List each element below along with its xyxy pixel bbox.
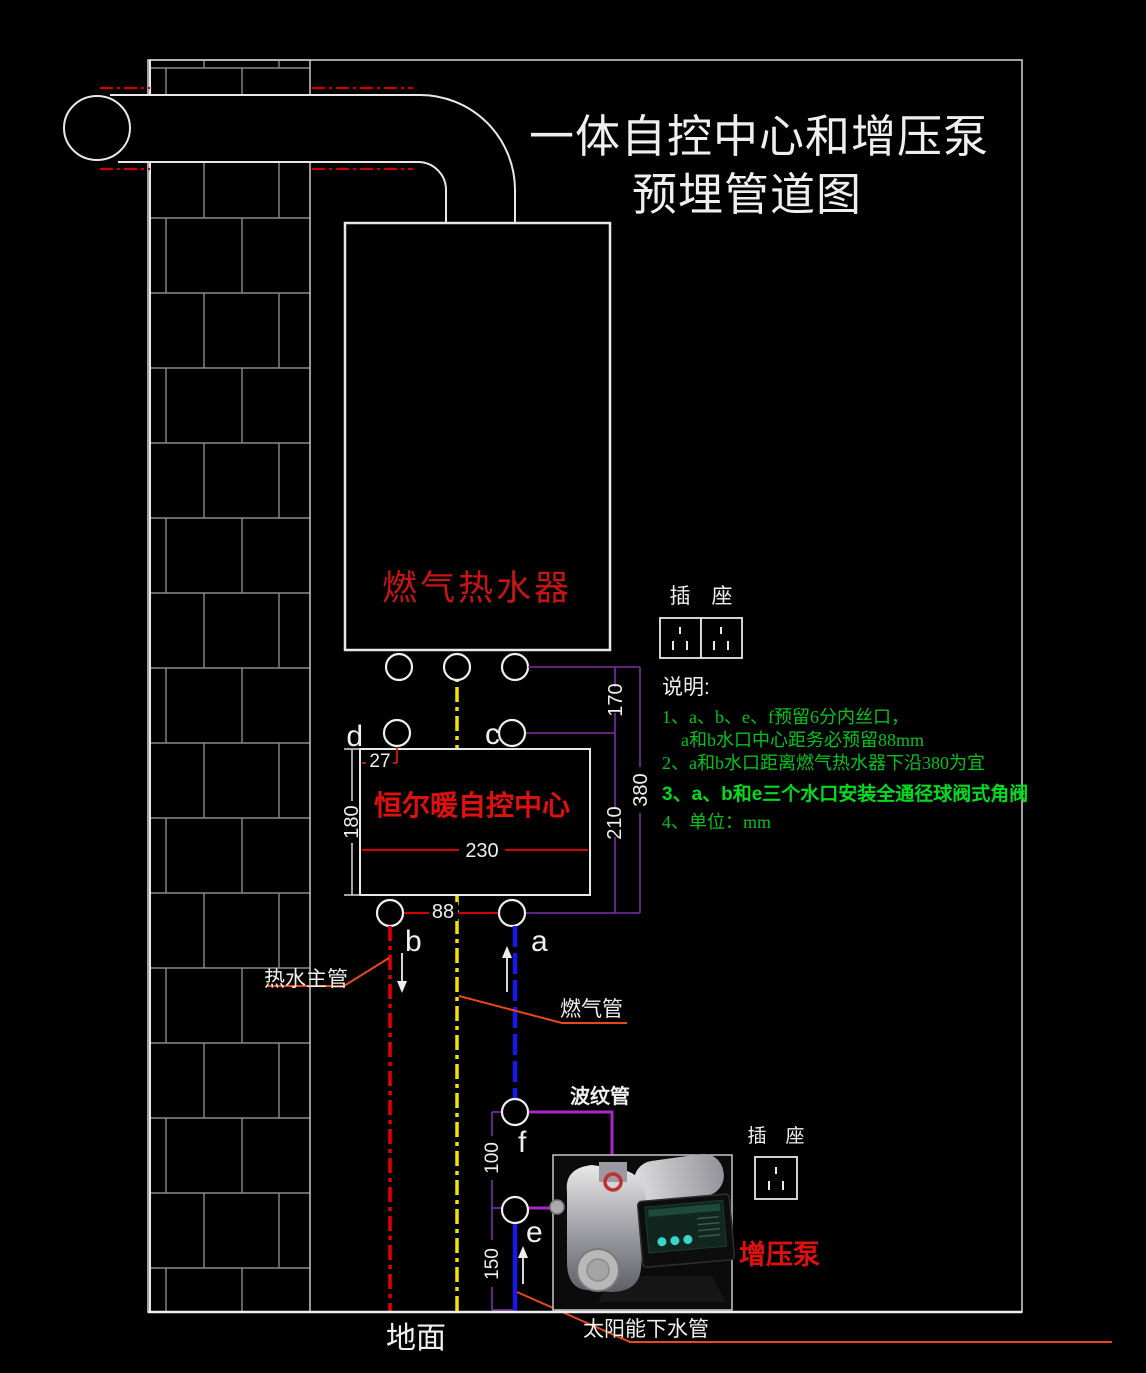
pump-control-panel xyxy=(637,1194,734,1268)
lower-ports xyxy=(502,1099,528,1223)
heater-port-right xyxy=(502,654,528,680)
pump-dial-inner xyxy=(587,1259,609,1281)
control-center-label: 恒尔暖自控中心 xyxy=(374,790,570,821)
flue-pipe-opening xyxy=(64,96,130,160)
booster-pump-photo xyxy=(550,1151,735,1310)
note-line-4: 3、a、b和e三个水口安装全通径球阀式角阀 xyxy=(662,782,1028,805)
socket-lower xyxy=(755,1157,797,1199)
dim-150-label: 150 xyxy=(482,1248,503,1280)
pipeline-diagram: 一体自控中心和增压泵 预埋管道图 燃气热水器 恒尔暖自控中心 插 座 插 座 说… xyxy=(0,0,1146,1373)
port-e-label: e xyxy=(526,1216,543,1249)
corrugated-pipe-label: 波纹管 xyxy=(570,1084,630,1108)
dim-100-label: 100 xyxy=(482,1142,503,1174)
up-arrow-head xyxy=(502,946,512,958)
heater-port-middle xyxy=(444,654,470,680)
port-a-label: a xyxy=(531,925,548,958)
brick-wall xyxy=(150,60,310,1312)
socket-lower-label: 插 座 xyxy=(747,1125,804,1147)
ground-label: 地面 xyxy=(386,1322,446,1355)
dim-230-label: 230 xyxy=(465,840,498,862)
brick-wall-body xyxy=(150,60,310,1312)
socket-upper xyxy=(660,618,742,658)
pump-top-fitting xyxy=(599,1162,627,1182)
gas-pipe-label: 燃气管 xyxy=(560,997,623,1021)
notes-heading: 说明: xyxy=(662,676,710,699)
dim-180-label: 180 xyxy=(341,805,363,838)
dim-170-label: 170 xyxy=(605,683,627,716)
note-line-5: 4、单位：mm xyxy=(662,812,771,832)
dim-210-label: 210 xyxy=(604,806,626,839)
down-arrow-head xyxy=(397,981,407,993)
port-c-label: c xyxy=(485,718,500,751)
solar-down-pipe-label: 太阳能下水管 xyxy=(583,1317,709,1341)
control-center-box xyxy=(360,749,590,895)
port-d-label: d xyxy=(346,720,363,753)
port-f-circle xyxy=(502,1099,528,1125)
dim-380-label: 380 xyxy=(630,773,652,806)
hot-water-main-label: 热水主管 xyxy=(264,967,348,991)
heater-bottom-ports xyxy=(386,654,528,680)
note-line-3: 2、a和b水口距离燃气热水器下沿380为宜 xyxy=(662,753,985,773)
dim-88-label: 88 xyxy=(432,901,454,923)
port-b-circle xyxy=(377,900,403,926)
heater-label: 燃气热水器 xyxy=(382,569,572,608)
socket-upper-label: 插 座 xyxy=(670,584,733,608)
note-line-2: a和b水口中心距务必预留88mm xyxy=(681,730,924,750)
port-f-label: f xyxy=(518,1126,527,1159)
note-line-1: 1、a、b、e、f预留6分内丝口， xyxy=(662,707,909,727)
dim-27-label: 27 xyxy=(369,751,390,772)
port-e-circle xyxy=(502,1197,528,1223)
port-a-circle xyxy=(499,900,525,926)
port-c-circle xyxy=(499,720,525,746)
port-d-circle xyxy=(384,720,410,746)
socket-outline xyxy=(701,618,742,658)
page-title-line1: 一体自控中心和增压泵 xyxy=(529,111,989,162)
drawing-canvas: 一体自控中心和增压泵 预埋管道图 燃气热水器 恒尔暖自控中心 插 座 插 座 说… xyxy=(0,0,1146,1373)
pump-side-port xyxy=(550,1200,564,1214)
socket-outline xyxy=(660,618,701,658)
heater-port-left xyxy=(386,654,412,680)
booster-pump-label: 增压泵 xyxy=(739,1239,820,1270)
port-b-label: b xyxy=(405,925,422,958)
socket-outline xyxy=(755,1157,797,1199)
page-title-line2: 预埋管道图 xyxy=(632,169,862,220)
